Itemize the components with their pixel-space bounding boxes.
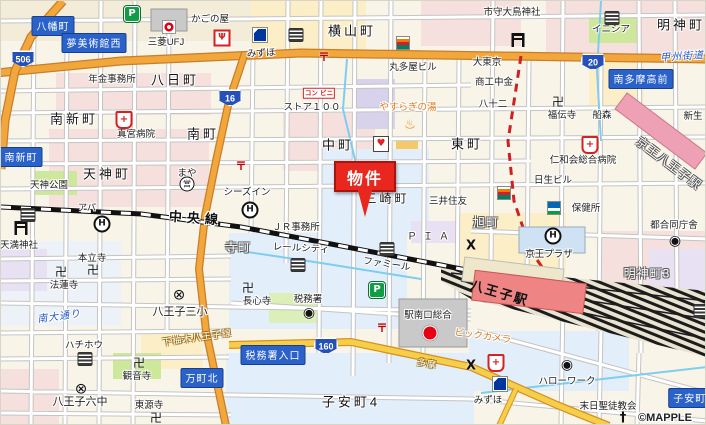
poi-dai-tokyo: 大東京 (473, 54, 502, 68)
town-nakacho: 中町 (322, 135, 354, 154)
poi-keio-plaza: 京王プラザ (525, 246, 573, 260)
hospital-icon: + (116, 111, 133, 129)
poi-rail-city: レールシティ (272, 239, 329, 256)
onsen-icon: ♨ (404, 119, 416, 132)
bank-icon (291, 258, 306, 272)
temple-icon: 卍 (55, 266, 67, 278)
police-box-icon: X (466, 360, 476, 373)
poi-nenkin-jimusho: 年金事務所 (88, 71, 136, 85)
poi-kannonji: 観音寺 (123, 368, 152, 382)
poi-shoko-chukin: 商工中金 (475, 74, 513, 88)
poi-temma-shrine: 天満神社 (0, 237, 38, 251)
hotel-icon: H (242, 202, 259, 219)
sign-zeimusho-iriguchi: 税務署入口 (241, 345, 306, 365)
post-office-icon: 〒 (377, 323, 388, 334)
poi-mizuho-north: みずほ (246, 44, 275, 59)
poi-horenji: 法蓮寺 (50, 277, 79, 291)
poi-tenjin-park: 天神公園 (30, 177, 68, 191)
poi-hokenjo: 保健所 (572, 200, 601, 214)
poi-mufg-bank: 三菱UFJ (148, 34, 184, 48)
poi-hachiho: ハチホウ (65, 337, 103, 351)
seven-eleven-icon (396, 36, 410, 50)
temple-icon: 卍 (133, 357, 145, 369)
poi-shinsei: 新生 (683, 108, 702, 122)
poi-choshinji: 長心寺 (243, 293, 272, 307)
poi-nissei-bldg: 日生ビル (534, 172, 572, 186)
route-shield-160: 160 (314, 338, 338, 355)
road-koshu-kaido: 甲州街道 (660, 46, 705, 64)
bank-icon (694, 304, 706, 318)
mizuho-logo-icon (493, 377, 507, 391)
poi-marutaya-bldg: 丸多屋ビル (389, 59, 437, 73)
town-higashicho: 東町 (451, 134, 483, 153)
post-office-icon: 〒 (236, 161, 247, 172)
bank-icon (380, 242, 395, 256)
sign-minami-tama-ko-mae: 南多摩高前 (609, 69, 674, 89)
poi-jr-jimusho: ＪＲ事務所 (272, 219, 320, 233)
temple-icon: 卍 (242, 282, 254, 294)
town-tenjincho: 天神町 (83, 164, 131, 183)
gov-office-icon: ◉ (561, 358, 573, 372)
seven-eleven-icon (497, 186, 511, 200)
hotel-icon: H (545, 228, 562, 245)
poi-hachioji-3rd-elementary: 八王子三小 (153, 303, 208, 319)
school-icon: ⊗ (173, 288, 186, 303)
town-teramachi: 寺町 (225, 239, 251, 256)
label-keio-hachioji-station: 京王八王子駅 (633, 133, 706, 194)
poi-hello-work: ハローワーク (538, 373, 595, 387)
poi-matsujitsu-seito-church: 末日聖徒教会 (579, 398, 636, 412)
gov-office-icon: ◉ (669, 234, 681, 248)
map-copyright: ©MAPPLE (638, 412, 692, 424)
poi-mizuho-south: みずほ (474, 392, 503, 406)
restaurant-icon: Ψ (214, 30, 231, 47)
road-minami-odori: 南大通り (36, 305, 82, 326)
torii-icon (15, 221, 28, 235)
torii-icon (512, 33, 525, 47)
bank-icon (289, 28, 304, 42)
school-icon: ⊗ (75, 382, 88, 397)
poi-apa: アパ (78, 201, 96, 214)
sign-minami-shincho: 南新町 (0, 147, 43, 167)
route-shield-506: 506 (11, 51, 35, 68)
poi-seas-inn: シーズイン (223, 184, 270, 198)
poi-pia: ＰＩＡ (407, 228, 455, 243)
map-label-layer: 八幡町夢美術館西南新町南多摩高前万町北税務署入口子安町4八日町横山町明神町南新町… (1, 1, 706, 425)
poi-kagonoya: かごの屋 (191, 11, 229, 25)
sign-mancho-kita: 万町北 (181, 368, 224, 388)
poi-eki-minamiguchi-sogo: 駅南口総合 (404, 307, 452, 321)
town-minamicho: 南町 (187, 124, 219, 143)
bic-camera-icon (423, 326, 438, 341)
family-mart-icon (547, 201, 561, 215)
town-myojincho: 明神町 (657, 15, 705, 34)
hotel-icon: H (94, 216, 111, 233)
route-shield-20: 20 (581, 54, 605, 71)
road-shimoyugi-hachioji-line: 下柚木八王子線 (161, 326, 232, 349)
poi-bic-camera: ビックカメラ (454, 324, 512, 346)
town-minami-shincho: 南新町 (50, 109, 98, 128)
poi-togenji: 東源寺 (135, 397, 164, 411)
convenience-icon: コン ビニ (303, 88, 335, 99)
poi-smbc: 三井住友 (429, 193, 467, 207)
parking-icon: P (124, 6, 140, 22)
property-marker[interactable]: 物件 (334, 161, 396, 192)
route-shield-16: 16 (218, 90, 242, 107)
gov-office-icon: ◉ (303, 306, 315, 320)
poi-honryuji: 本立寺 (78, 250, 107, 264)
heart-icon: ♥ (373, 136, 389, 152)
poi-ichimori-otori-shrine: 市守大鳥神社 (483, 4, 540, 18)
rail-chuo-line: 中央線 (168, 206, 223, 229)
sign-yume-bijutsukan-nishi: 夢美術館西 (62, 33, 127, 53)
town-myojincho-3: 明神町3 (624, 265, 671, 282)
hospital-icon: + (582, 136, 599, 154)
mufg-logo-icon (162, 20, 176, 34)
poi-ninnakai-hospital: 仁和会総合病院 (550, 152, 617, 166)
poi-hachioji-station: 八王子駅 (469, 275, 532, 310)
poi-store-100: ストア１００ (283, 99, 340, 113)
town-yokoyamacho: 横山町 (328, 21, 376, 40)
poi-hachijuni-bank: 八十二 (479, 96, 508, 110)
town-yokamachi: 八日町 (151, 70, 199, 89)
poi-funamori: 船森 (592, 107, 611, 121)
poi-zeimusho: 税務署 (294, 291, 323, 305)
church-icon: † (620, 412, 627, 425)
post-office-icon: 〒 (319, 52, 330, 63)
road-tama: 多摩 (416, 355, 438, 371)
temple-icon: 卍 (87, 264, 99, 276)
map-canvas[interactable]: 八幡町夢美術館西南新町南多摩高前万町北税務署入口子安町4八日町横山町明神町南新町… (0, 0, 706, 425)
hospital-icon: + (488, 354, 505, 372)
temple-icon: 卍 (552, 96, 564, 108)
temple-icon: 卍 (150, 412, 162, 424)
bank-icon (605, 11, 620, 25)
bank-icon (21, 208, 36, 222)
poi-fukudenji: 福伝寺 (548, 107, 577, 121)
bus-office-icon: 営 (180, 177, 195, 192)
town-asahicho: 旭町 (473, 214, 499, 231)
police-box-icon: X (466, 240, 476, 253)
poi-to-godo-chosha: 都合同庁舎 (650, 217, 698, 231)
mizuho-logo-icon (253, 28, 267, 42)
parking-icon: P (369, 282, 385, 298)
town-koyasucho-4: 子安町4 (322, 392, 380, 411)
poi-yasuragi-no-yu: やすらぎの湯 (379, 99, 436, 113)
bank-icon (78, 352, 93, 366)
sign-koyasucho: 子安町4 (668, 388, 706, 408)
